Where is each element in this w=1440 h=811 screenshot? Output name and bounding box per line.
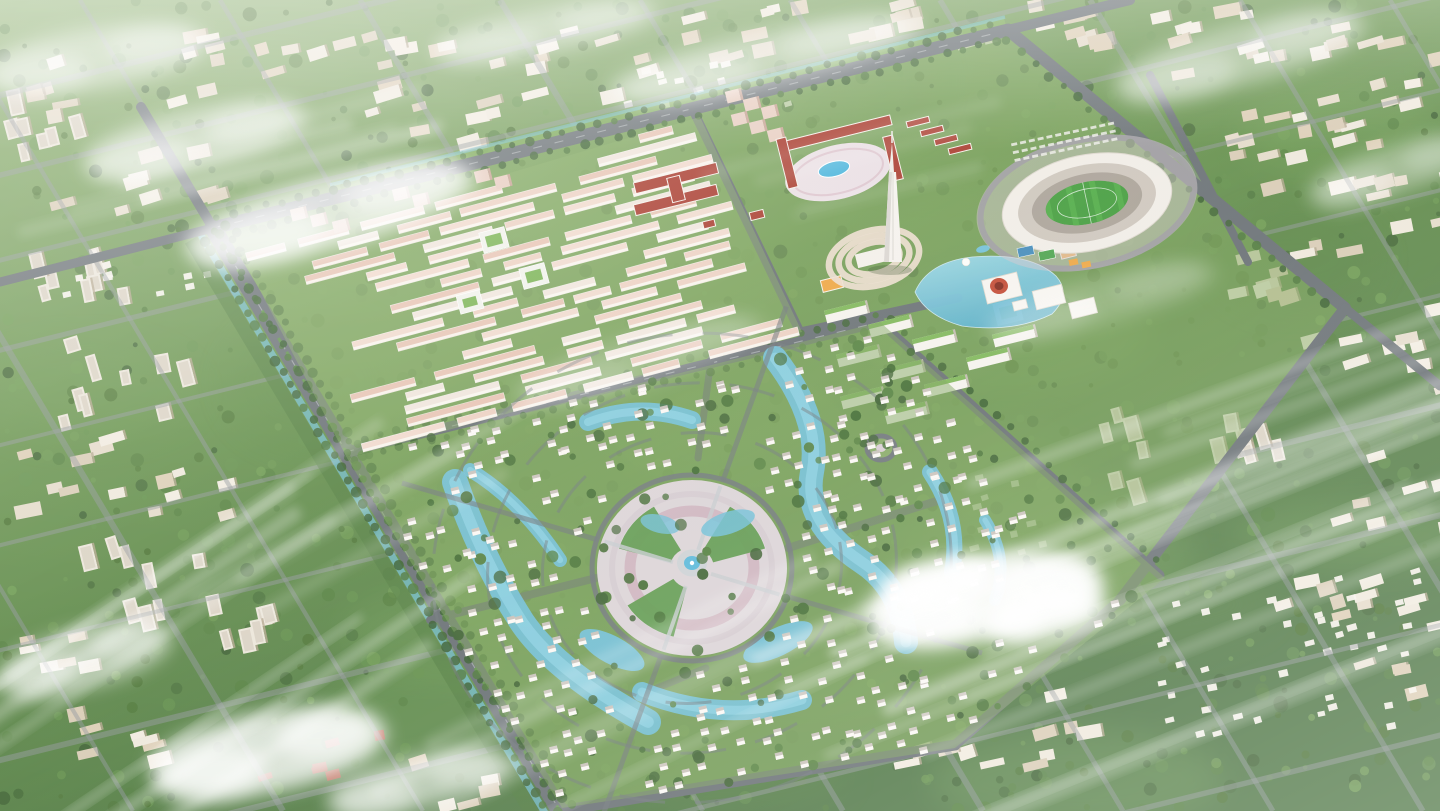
- masterplan-svg: [0, 0, 1440, 811]
- corner-haze-br: [0, 0, 1440, 811]
- masterplan-render: [0, 0, 1440, 811]
